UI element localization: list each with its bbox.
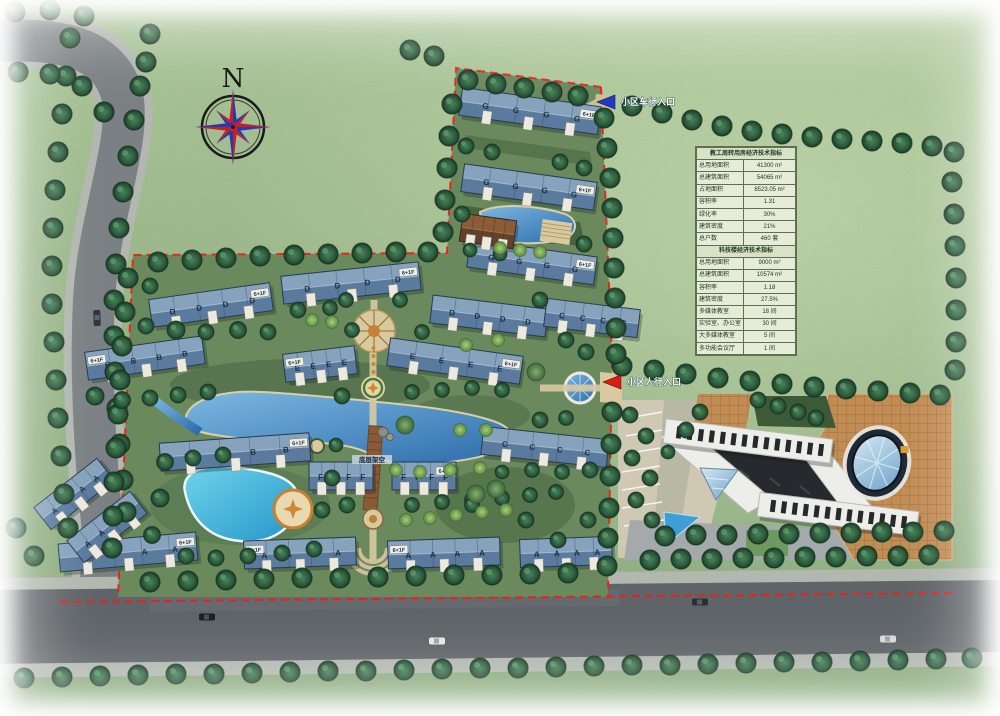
unit-letter: A — [335, 549, 341, 558]
entry-canopy — [488, 372, 499, 386]
entry-canopy — [482, 187, 493, 201]
unit-letter: C — [529, 442, 536, 452]
spec-value: 10574 m² — [744, 269, 796, 281]
entry-canopy — [408, 361, 419, 375]
unit-letter: F — [318, 473, 323, 482]
site-plan: GGGG6+1F GGGG6+1F GGGG6+1F DDDD6+1F DDDD… — [0, 0, 1000, 716]
entry-canopy — [124, 558, 134, 572]
entry-canopy — [517, 326, 528, 340]
unit-letter: C — [557, 445, 564, 455]
spec-label: 总户数 — [697, 233, 744, 245]
spec-label: 总建筑面积 — [697, 172, 744, 184]
unit-letter: G — [543, 110, 550, 120]
spec-value: 8523.05 m² — [744, 184, 796, 196]
spec-label: 建筑密度 — [697, 221, 744, 233]
unit-letter: G — [482, 101, 489, 111]
unit-letter: C — [501, 439, 508, 449]
striped-deck — [540, 219, 573, 245]
building-stilt: FFFF — [309, 462, 376, 495]
spec-value: 1.18 — [744, 282, 796, 294]
medallion-plaza — [361, 376, 385, 400]
sun-medallion — [274, 490, 312, 528]
entry-canopy — [338, 367, 349, 381]
spec-value: 41300 m² — [744, 160, 796, 172]
spec-label: 多媒体教室 — [697, 306, 744, 318]
compass-north-label: N — [222, 64, 245, 94]
entry-canopy — [564, 122, 575, 136]
unit-letter: F — [401, 473, 406, 482]
unit-letter: G — [543, 261, 550, 271]
spec-label: 总用地面积 — [697, 160, 744, 172]
lower-medallion — [363, 509, 383, 529]
entry-canopy — [439, 482, 448, 495]
spec-value: 1.31 — [744, 196, 796, 208]
unit-letter: G — [515, 257, 522, 267]
unit-letter: F — [360, 473, 365, 482]
entry-canopy — [400, 482, 409, 495]
unit-letter: G — [541, 186, 548, 196]
unit-letter: A — [594, 548, 600, 557]
unit-letter: G — [512, 182, 519, 192]
unit-letter: G — [512, 106, 519, 116]
entry-canopy — [481, 110, 492, 124]
unit-letter: D — [334, 281, 341, 291]
entry-canopy — [141, 363, 152, 377]
unit-letter: D — [364, 278, 371, 288]
spec-value: 460 套 — [744, 233, 796, 245]
spec-label: 建筑密度 — [697, 294, 744, 306]
stilt-label-text: 底层架空 — [359, 455, 386, 464]
pedestrian-entrance-label: 小区人行入口 — [626, 376, 681, 387]
spec-label: 大多媒体教室 — [697, 330, 744, 342]
unit-letter: B — [283, 445, 290, 454]
spec-value: 1 间 — [744, 343, 796, 355]
entry-canopy — [83, 561, 93, 575]
unit-letter: A — [430, 550, 436, 559]
entry-canopy — [563, 273, 574, 287]
entry-canopy — [295, 372, 306, 386]
entry-canopy — [448, 317, 459, 331]
unit-letter: A — [534, 550, 540, 559]
entry-canopy — [176, 358, 187, 372]
vehicle-entrance-label: 小区车行入口 — [620, 96, 675, 107]
spec-value: 54065 m² — [744, 172, 796, 184]
unit-letter: C — [584, 448, 591, 458]
entry-canopy — [207, 310, 218, 324]
spec-section1-title: 教工周转用房经济技术指标 — [697, 148, 796, 160]
unit-letter: G — [573, 114, 580, 124]
entry-canopy — [481, 236, 492, 250]
site-plan-canvas: GGGG6+1F GGGG6+1F GGGG6+1F DDDD6+1F DDDD… — [0, 0, 1000, 716]
unit-letter: A — [479, 549, 485, 558]
unit-letter: A — [554, 549, 560, 558]
entry-canopy — [316, 369, 327, 383]
spec-label: 总建筑面积 — [697, 269, 744, 281]
spec-value: 21% — [744, 221, 796, 233]
entry-canopy — [473, 558, 482, 571]
entry-canopy — [585, 323, 596, 337]
spec-value: 18 间 — [744, 306, 796, 318]
floor-label: 6+1F — [392, 548, 406, 554]
entry-canopy — [306, 293, 316, 307]
unit-letter: F — [346, 473, 351, 482]
entry-canopy — [317, 482, 326, 495]
entry-canopy — [420, 482, 429, 495]
spec-section2-title: 科技楼经济技术指标 — [697, 245, 796, 257]
spec-value: 9000 m² — [744, 257, 796, 269]
entry-canopy — [539, 452, 549, 466]
spec-label: 容积率 — [697, 282, 744, 294]
entry-canopy — [231, 458, 241, 472]
spec-label: 绿化率 — [697, 208, 744, 220]
entry-canopy — [448, 366, 459, 380]
entry-canopy — [356, 482, 365, 495]
unit-letter: F — [429, 473, 434, 482]
entry-canopy — [487, 262, 498, 276]
spec-value: 30% — [744, 208, 796, 220]
unit-letter: A — [574, 549, 580, 558]
spec-label: 实验室、办公室 — [697, 318, 744, 330]
entry-canopy — [276, 455, 286, 469]
spec-value: 30 间 — [744, 318, 796, 330]
unit-letter: G — [483, 178, 490, 188]
spec-label: 容积率 — [697, 196, 744, 208]
entry-canopy — [482, 321, 493, 335]
spec-table: 教工周转用房经济技术指标 总用地面积41300 m² 总建筑面积54065 m²… — [696, 147, 796, 355]
entry-canopy — [501, 449, 511, 463]
spec-value: 5 间 — [744, 330, 796, 342]
floor-label: 6+1F — [179, 540, 193, 547]
entry-canopy — [165, 554, 175, 568]
unit-letter: A — [141, 547, 148, 556]
floor-label: 6+1F — [292, 440, 306, 447]
spec-value: 27.5% — [744, 294, 796, 306]
entry-canopy — [525, 267, 536, 281]
stilt-label: 底层架空 — [352, 455, 392, 464]
unit-letter: B — [250, 448, 257, 457]
spec-label: 占地面积 — [697, 184, 744, 196]
spec-label: 多功能会议厅 — [697, 343, 744, 355]
spec-label: 总用地面积 — [697, 257, 744, 269]
entry-canopy — [522, 192, 533, 206]
entry-canopy — [244, 305, 255, 319]
entry-canopy — [523, 116, 534, 130]
unit-letter: A — [454, 549, 460, 558]
entry-canopy — [562, 198, 573, 212]
unit-letter: D — [304, 284, 311, 294]
